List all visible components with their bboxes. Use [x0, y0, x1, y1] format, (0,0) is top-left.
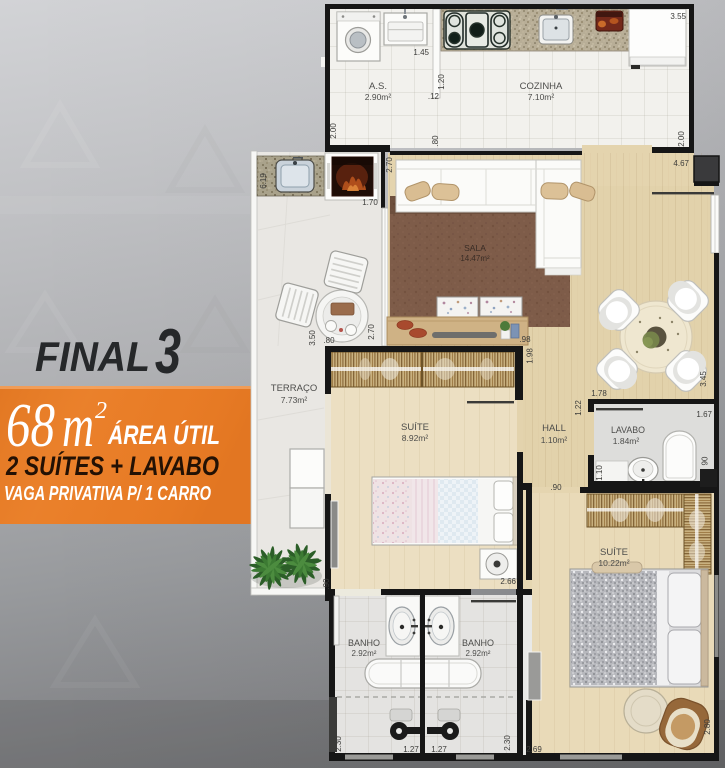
svg-text:7.73m²: 7.73m²: [281, 395, 308, 405]
svg-text:1.98: 1.98: [526, 348, 535, 364]
svg-text:1.78: 1.78: [591, 389, 607, 398]
svg-text:68: 68: [6, 392, 55, 460]
svg-text:2.92m²: 2.92m²: [466, 649, 491, 658]
svg-text:2.70: 2.70: [367, 324, 376, 340]
svg-text:HALL: HALL: [542, 423, 566, 434]
svg-text:A.S.: A.S.: [369, 81, 387, 92]
svg-text:3: 3: [155, 317, 181, 387]
svg-text:2.80: 2.80: [703, 719, 712, 735]
svg-text:1.10m²: 1.10m²: [541, 435, 568, 445]
svg-text:3.50: 3.50: [308, 330, 317, 346]
svg-text:1.45: 1.45: [413, 48, 429, 57]
svg-text:.98: .98: [519, 335, 531, 344]
svg-text:10.22m²: 10.22m²: [598, 558, 629, 568]
svg-text:1.10: 1.10: [595, 465, 604, 481]
svg-text:1.70: 1.70: [362, 198, 378, 207]
svg-text:SUÍTE: SUÍTE: [401, 422, 429, 433]
svg-text:BANHO: BANHO: [462, 638, 494, 648]
svg-text:2.70: 2.70: [385, 157, 394, 173]
svg-text:2.66: 2.66: [500, 577, 516, 586]
svg-text:1.84m²: 1.84m²: [613, 436, 640, 446]
svg-text:2.92m²: 2.92m²: [352, 649, 377, 658]
svg-text:1.20: 1.20: [437, 74, 446, 90]
svg-text:.80: .80: [431, 135, 440, 147]
svg-text:6.19: 6.19: [259, 173, 268, 189]
svg-text:TERRAÇO: TERRAÇO: [271, 383, 317, 394]
svg-text:2.90m²: 2.90m²: [365, 92, 392, 102]
svg-text:.80: .80: [323, 336, 335, 345]
svg-text:COZINHA: COZINHA: [520, 81, 563, 92]
svg-text:2: 2: [95, 398, 107, 424]
svg-text:2.00: 2.00: [677, 131, 686, 147]
svg-text:2 SUÍTES + LAVABO: 2 SUÍTES + LAVABO: [5, 450, 219, 481]
svg-text:2.69: 2.69: [526, 745, 542, 754]
svg-text:m: m: [62, 393, 94, 459]
svg-text:7.10m²: 7.10m²: [528, 92, 555, 102]
svg-text:1.27: 1.27: [431, 745, 447, 754]
svg-text:VAGA PRIVATIVA P/ 1 CARRO: VAGA PRIVATIVA P/ 1 CARRO: [4, 483, 211, 505]
svg-text:BANHO: BANHO: [348, 638, 380, 648]
svg-text:4.67: 4.67: [673, 159, 689, 168]
svg-text:SUÍTE: SUÍTE: [600, 547, 628, 558]
svg-text:2.00: 2.00: [329, 123, 338, 139]
svg-text:SALA: SALA: [464, 243, 486, 253]
svg-text:1.22: 1.22: [574, 400, 583, 416]
svg-text:3.55: 3.55: [670, 12, 686, 21]
svg-text:8.92m²: 8.92m²: [402, 433, 429, 443]
svg-text:14.47m²: 14.47m²: [460, 254, 490, 263]
svg-text:3.45: 3.45: [699, 371, 708, 387]
svg-text:ÁREA ÚTIL: ÁREA ÚTIL: [107, 419, 220, 450]
svg-text:FINAL: FINAL: [35, 333, 150, 380]
svg-text:2.30: 2.30: [503, 735, 512, 751]
svg-text:LAVABO: LAVABO: [611, 425, 645, 435]
svg-text:.90: .90: [550, 483, 562, 492]
svg-text:.90: .90: [322, 578, 331, 590]
svg-text:90: 90: [701, 456, 710, 465]
svg-text:2.30: 2.30: [334, 736, 343, 752]
svg-text:.12: .12: [428, 92, 440, 101]
svg-text:1.67: 1.67: [696, 410, 712, 419]
svg-text:1.27: 1.27: [403, 745, 419, 754]
